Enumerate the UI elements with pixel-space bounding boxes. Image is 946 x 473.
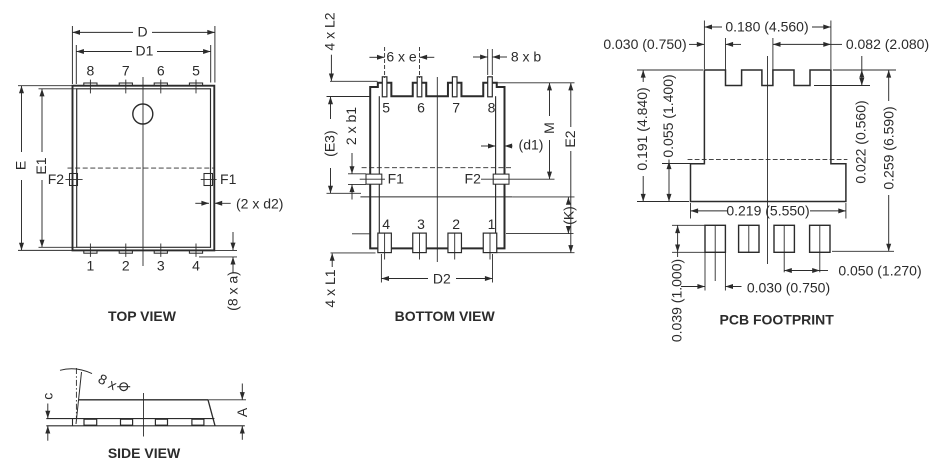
svg-text:7: 7	[452, 100, 460, 116]
svg-text:5: 5	[192, 62, 200, 78]
svg-text:0.030 (0.750): 0.030 (0.750)	[747, 280, 830, 296]
svg-text:7: 7	[122, 62, 130, 78]
svg-text:1: 1	[87, 257, 95, 273]
svg-text:D: D	[137, 23, 147, 39]
svg-text:0.082 (2.080): 0.082 (2.080)	[846, 36, 929, 52]
svg-text:3: 3	[417, 216, 425, 232]
svg-text:2 x b1: 2 x b1	[343, 107, 359, 145]
svg-text:5: 5	[382, 100, 390, 116]
svg-text:4: 4	[192, 257, 200, 273]
svg-text:2: 2	[122, 257, 130, 273]
svg-text:F1: F1	[388, 170, 405, 186]
svg-text:3: 3	[157, 257, 165, 273]
svg-text:(d1): (d1)	[519, 137, 544, 153]
svg-text:E1: E1	[33, 157, 49, 174]
svg-text:c: c	[39, 393, 55, 400]
svg-text:(2 x d2): (2 x d2)	[236, 195, 283, 211]
svg-text:0.180 (4.560): 0.180 (4.560)	[725, 18, 808, 34]
svg-text:PCB FOOTPRINT: PCB FOOTPRINT	[720, 312, 835, 328]
svg-text:A: A	[234, 407, 250, 417]
svg-text:(K): (K)	[560, 206, 576, 225]
svg-text:0.259 (6.590): 0.259 (6.590)	[881, 106, 897, 189]
svg-text:8: 8	[488, 100, 496, 116]
svg-text:E2: E2	[562, 130, 578, 147]
svg-text:6: 6	[417, 100, 425, 116]
svg-text:2: 2	[452, 216, 460, 232]
svg-text:0.022 (0.560): 0.022 (0.560)	[853, 100, 869, 183]
svg-text:0.055 (1.400): 0.055 (1.400)	[660, 74, 676, 157]
svg-text:4 x L1: 4 x L1	[322, 269, 338, 307]
svg-text:1: 1	[488, 216, 496, 232]
svg-text:F2: F2	[465, 170, 482, 186]
svg-text:M: M	[541, 122, 557, 134]
svg-text:6: 6	[157, 62, 165, 78]
svg-text:TOP VIEW: TOP VIEW	[108, 308, 177, 324]
svg-text:4 x L2: 4 x L2	[322, 12, 338, 50]
svg-text:0.219 (5.550): 0.219 (5.550)	[726, 203, 809, 219]
svg-text:E: E	[13, 161, 29, 170]
svg-text:8: 8	[87, 62, 95, 78]
svg-text:0.191 (4.840): 0.191 (4.840)	[634, 87, 650, 170]
svg-text:D1: D1	[136, 42, 154, 58]
svg-text:4: 4	[382, 216, 390, 232]
svg-text:0.039 (1.000): 0.039 (1.000)	[669, 259, 685, 342]
svg-text:D2: D2	[433, 270, 451, 286]
svg-text:SIDE VIEW: SIDE VIEW	[108, 445, 181, 461]
svg-text:BOTTOM VIEW: BOTTOM VIEW	[395, 308, 496, 324]
svg-text:6 x e: 6 x e	[386, 49, 417, 65]
svg-text:F2: F2	[48, 171, 65, 187]
svg-text:8 x b: 8 x b	[511, 49, 542, 65]
svg-text:(E3): (E3)	[322, 130, 338, 156]
svg-text:F1: F1	[220, 171, 237, 187]
svg-text:(8 x a): (8 x a)	[225, 271, 241, 311]
svg-text:0.050 (1.270): 0.050 (1.270)	[838, 263, 921, 279]
svg-text:0.030 (0.750): 0.030 (0.750)	[603, 36, 686, 52]
